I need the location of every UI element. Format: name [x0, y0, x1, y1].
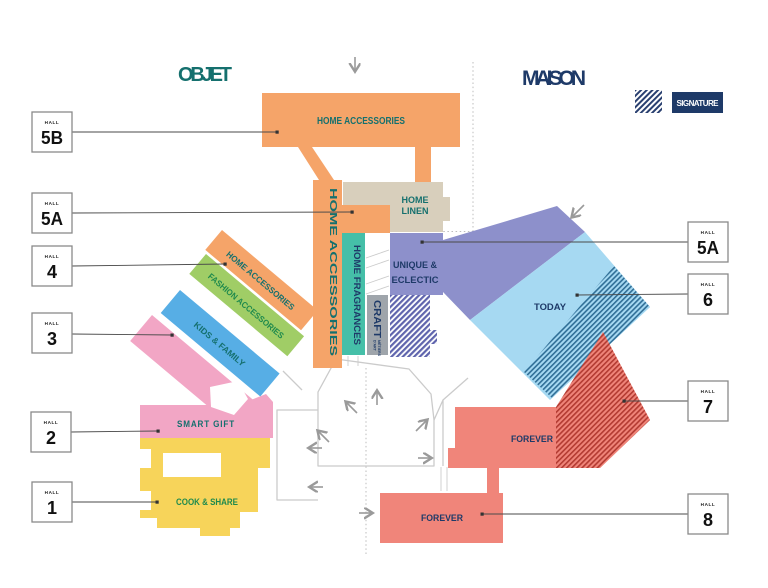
signature-hatch-swatch: [635, 90, 662, 113]
hall-word: HALL: [45, 321, 60, 326]
cook-share-tab: [200, 528, 230, 536]
zone-unique-eclectic-label1: UNIQUE &: [393, 260, 437, 270]
cook-share-notch-1: [140, 449, 151, 468]
zone-unique-eclectic-label2: ECLECTIC: [392, 275, 440, 285]
hall-word: HALL: [44, 420, 59, 425]
hall-word: HALL: [45, 201, 60, 206]
hall-badge-6[interactable]: HALL 6: [688, 274, 728, 314]
hall-badge-1[interactable]: HALL 1: [32, 482, 72, 522]
zone-forever-hall8-label: FOREVER: [421, 513, 463, 524]
hall-word: HALL: [45, 120, 60, 125]
zone-today-label: TODAY: [534, 302, 567, 313]
hall-number: 1: [47, 498, 57, 518]
hall-badge-7[interactable]: HALL 7: [688, 381, 728, 421]
zone-forever-hall8[interactable]: FOREVER: [380, 493, 503, 543]
zone-5a-vertical-label: HOME ACCESSORIES: [327, 188, 338, 357]
hall-number: 6: [703, 290, 713, 310]
signature-label: SIGNATURE: [677, 99, 720, 108]
hall-badge-4[interactable]: HALL 4: [32, 246, 72, 286]
zone-cook-share-shape[interactable]: [140, 438, 270, 528]
zone-craft-sublabel-1: MÉTIERS: [377, 340, 382, 357]
hall-number: 8: [703, 510, 713, 530]
cook-share-courtyard-cutout: [163, 453, 221, 477]
zone-craft-sublabel-2: D'ART: [373, 340, 377, 352]
zone-5b-connector-left: [298, 147, 334, 180]
hall-number: 7: [703, 397, 713, 417]
zone-home-fragrances[interactable]: HOME FRAGRANCES: [342, 233, 365, 355]
zone-cook-share-label: COOK & SHARE: [176, 497, 238, 508]
legend-signature: SIGNATURE: [635, 90, 723, 113]
zone-home-linen-label2: LINEN: [402, 206, 429, 216]
zone-cook-share[interactable]: COOK & SHARE: [140, 438, 270, 536]
zone-home-accessories-5b[interactable]: HOME ACCESSORIES: [262, 93, 460, 183]
hall-word: HALL: [701, 502, 716, 507]
zone-home-fragrances-label: HOME FRAGRANCES: [352, 245, 362, 345]
hall-word: HALL: [701, 230, 716, 235]
hall-word: HALL: [701, 282, 716, 287]
hall-badge-3[interactable]: HALL 3: [32, 313, 72, 353]
arrow-up-right-icon: [416, 420, 427, 431]
cook-share-notch-2: [140, 491, 151, 510]
hall-word: HALL: [45, 490, 60, 495]
hall-badge-5a-right[interactable]: HALL 5A: [688, 222, 728, 262]
zone-craft[interactable]: CRAFT MÉTIERS D'ART: [367, 295, 388, 357]
hall-word: HALL: [701, 389, 716, 394]
zone-unique-eclectic[interactable]: UNIQUE & ECLECTIC: [390, 233, 443, 357]
title-objet: OBJET: [178, 64, 234, 86]
hall-number: 5A: [697, 238, 719, 258]
hall-number: 3: [47, 329, 57, 349]
hall-number: 5B: [41, 128, 63, 148]
zone-craft-label: CRAFT: [371, 300, 382, 338]
arrow-up-left-icon: [318, 431, 329, 442]
hall-badge-8[interactable]: HALL 8: [688, 494, 728, 534]
hall-badge-5a-left[interactable]: HALL 5A: [32, 193, 72, 233]
hall-word: HALL: [45, 254, 60, 259]
zone-smart-gift-label: SMART GIFT: [177, 419, 235, 430]
zone-home-accessories-5b-label: HOME ACCESSORIES: [317, 116, 405, 127]
zone-unique-eclectic-signature-shape[interactable]: [390, 295, 437, 357]
zone-5b-connector-right: [415, 147, 431, 183]
zone-forever-hall7-label: FOREVER: [511, 434, 553, 445]
floor-plan-map: OBJET MAISON SIGNATURE HOME ACCESSORIES: [0, 0, 768, 588]
zone-5a-block[interactable]: [342, 205, 390, 233]
zone-home-linen-label1: HOME: [402, 195, 429, 205]
hall-badge-5b[interactable]: HALL 5B: [32, 112, 72, 152]
hall-badge-2[interactable]: HALL 2: [31, 412, 71, 452]
arrow-up-left-icon: [346, 402, 357, 413]
hall-number: 5A: [41, 209, 63, 229]
hall-number: 4: [47, 262, 57, 282]
arrow-down-left-icon: [572, 205, 584, 217]
title-maison: MAISON: [522, 67, 588, 90]
hall-number: 2: [46, 428, 56, 448]
